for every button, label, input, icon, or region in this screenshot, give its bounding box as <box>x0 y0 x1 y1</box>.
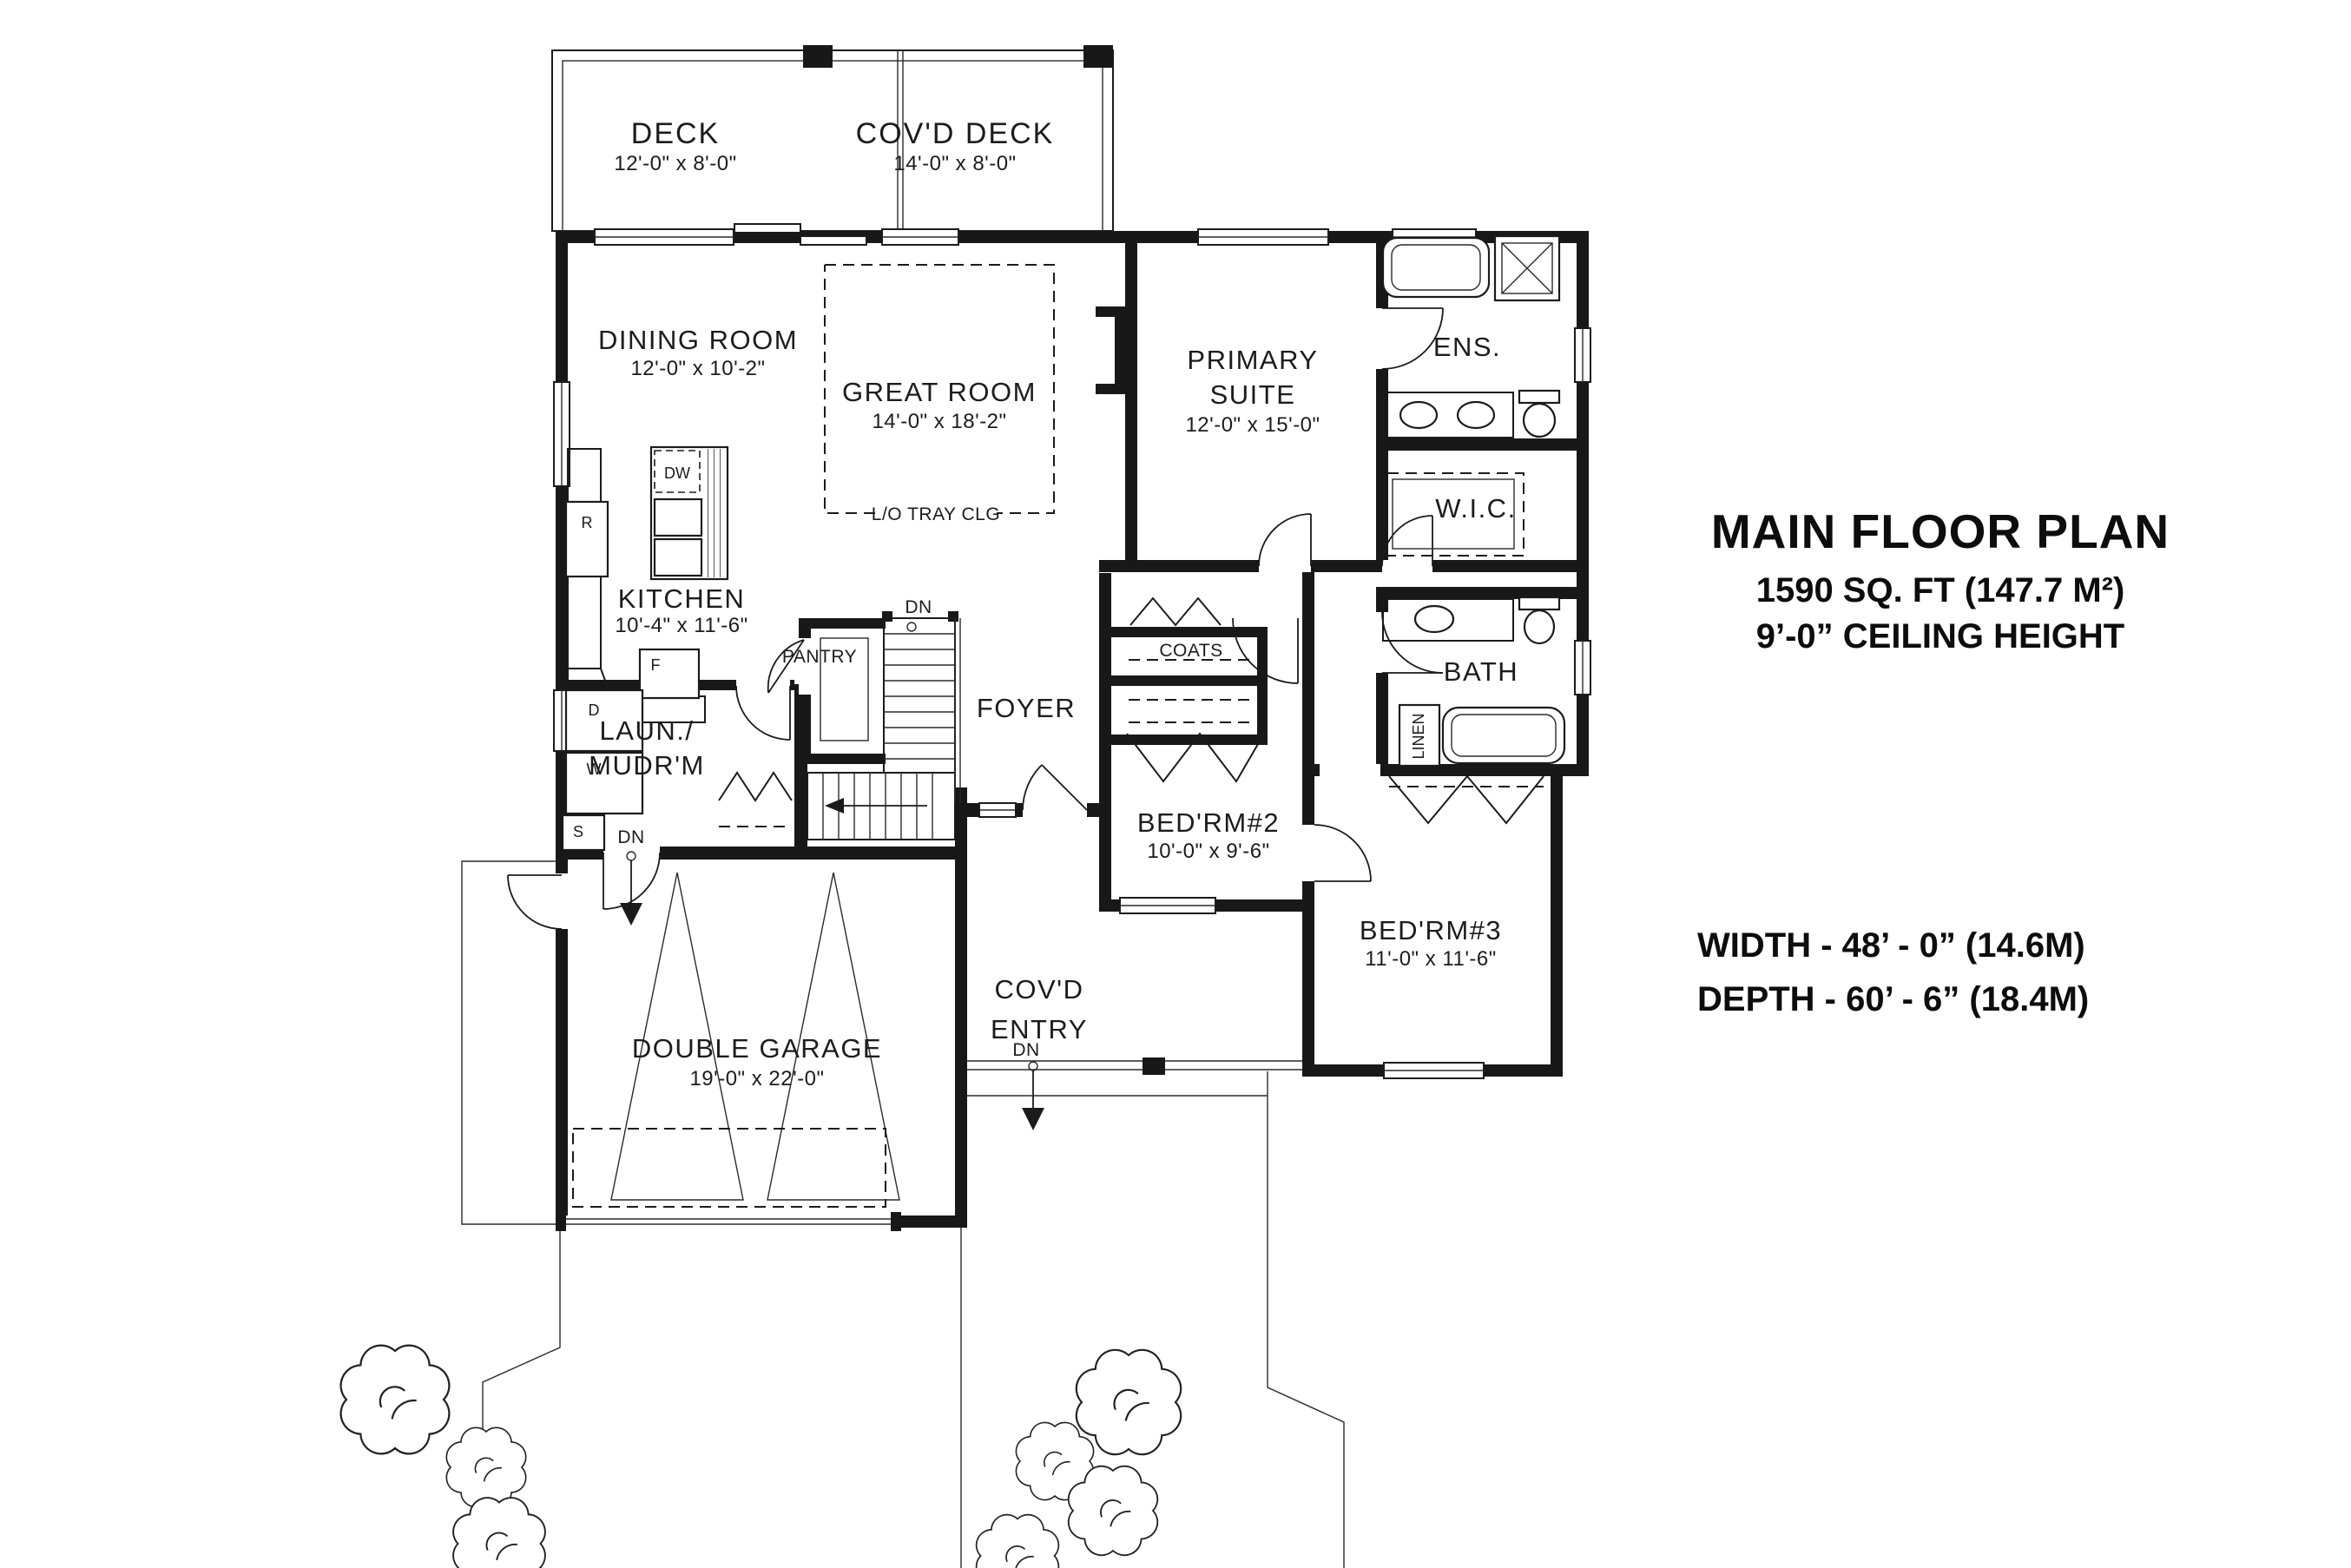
tree-icon <box>977 1515 1059 1568</box>
deck-dims: 12'-0" x 8'-0" <box>614 152 736 175</box>
plan-width: WIDTH - 48’ - 0” (14.6M) <box>1697 919 2089 972</box>
dishwasher-label: DW <box>664 464 690 482</box>
sink <box>1415 606 1453 632</box>
window <box>1575 641 1590 695</box>
window <box>1384 1063 1484 1078</box>
floor-plan-drawing: DECK 12'-0" x 8'-0" COV'D DECK 14'-0" x … <box>0 0 2351 1568</box>
covd-deck-label: COV'D DECK <box>856 117 1055 150</box>
shower <box>1495 236 1559 300</box>
toilet <box>1519 391 1559 437</box>
window <box>979 803 1016 817</box>
kitchen-label: KITCHEN <box>618 583 746 614</box>
primary-suite-label: PRIMARY <box>1187 345 1318 375</box>
laundry-label: LAUN./ <box>600 715 695 746</box>
pantry-label: PANTRY <box>782 647 857 667</box>
bedroom3-label: BED'RM#3 <box>1360 915 1502 945</box>
fridge-box <box>566 502 608 576</box>
sink <box>1400 402 1437 428</box>
tub <box>1383 238 1489 297</box>
tree-icon <box>446 1427 525 1506</box>
bedroom2-dims: 10'-0" x 9'-6" <box>1147 840 1269 863</box>
foyer-label: FOYER <box>977 693 1076 723</box>
linen-label: LINEN <box>1410 713 1427 759</box>
bath-label: BATH <box>1444 656 1518 687</box>
window <box>1575 328 1590 382</box>
mudroom-dn-label: DN <box>617 827 644 847</box>
trees <box>341 1346 1182 1568</box>
coats-label: COATS <box>1159 641 1222 661</box>
stairs-dn-label: DN <box>905 597 932 617</box>
toilet <box>1519 597 1559 643</box>
floor-plan-page: DECK 12'-0" x 8'-0" COV'D DECK 14'-0" x … <box>0 0 2351 1568</box>
kitchen-dims: 10'-4" x 11'-6" <box>615 614 747 637</box>
bedroom3-dims: 11'-0" x 11'-6" <box>1365 947 1497 971</box>
tree-icon <box>1077 1350 1181 1454</box>
plan-ceiling-height: 9’-0” CEILING HEIGHT <box>1654 617 2227 656</box>
laundry-label2: MUDR'M <box>589 750 705 781</box>
covd-deck-dims: 14'-0" x 8'-0" <box>893 152 1016 175</box>
covd-entry-label: COV'D <box>995 974 1084 1005</box>
window <box>1198 229 1328 245</box>
range-box <box>640 649 699 698</box>
fridge-label: R <box>582 514 593 531</box>
garage-dims: 19'-0" x 22'-0" <box>689 1067 824 1090</box>
ensuite-label: ENS. <box>1433 332 1501 362</box>
tub <box>1443 708 1564 763</box>
plan-title: MAIN FLOOR PLAN <box>1654 504 2227 559</box>
washer-label: W <box>587 761 602 778</box>
tray-ceiling-note: L/O TRAY CLG <box>872 504 1000 524</box>
dining-dims: 12'-0" x 10'-2" <box>630 357 765 380</box>
sink-label: S <box>573 823 583 840</box>
wic-label: W.I.C. <box>1435 493 1516 524</box>
window <box>595 229 734 245</box>
title-block: MAIN FLOOR PLAN 1590 SQ. FT (147.7 M²) 9… <box>1654 504 2227 656</box>
sink <box>1458 402 1494 428</box>
plan-depth: DEPTH - 60’ - 6” (18.4M) <box>1697 972 2089 1026</box>
primary-suite-label2: SUITE <box>1210 379 1296 410</box>
dryer-label: D <box>589 702 600 719</box>
yard-lines <box>462 861 1344 1568</box>
range-label: F <box>651 656 661 674</box>
deck-label: DECK <box>631 117 720 150</box>
plan-area: 1590 SQ. FT (147.7 M²) <box>1654 571 2227 610</box>
dining-label: DINING ROOM <box>598 325 798 355</box>
entry-dn-label: DN <box>1012 1040 1039 1060</box>
primary-suite-dims: 12'-0" x 15'-0" <box>1185 413 1320 437</box>
tree-icon <box>453 1498 545 1568</box>
tree-icon <box>341 1346 450 1454</box>
window <box>1120 898 1215 913</box>
great-room-dims: 14'-0" x 18'-2" <box>872 410 1006 433</box>
size-block: WIDTH - 48’ - 0” (14.6M) DEPTH - 60’ - 6… <box>1697 919 2089 1026</box>
garage-label: DOUBLE GARAGE <box>632 1033 882 1064</box>
bedroom2-label: BED'RM#2 <box>1137 807 1280 838</box>
window <box>882 229 958 245</box>
great-room-label: GREAT ROOM <box>842 377 1037 407</box>
